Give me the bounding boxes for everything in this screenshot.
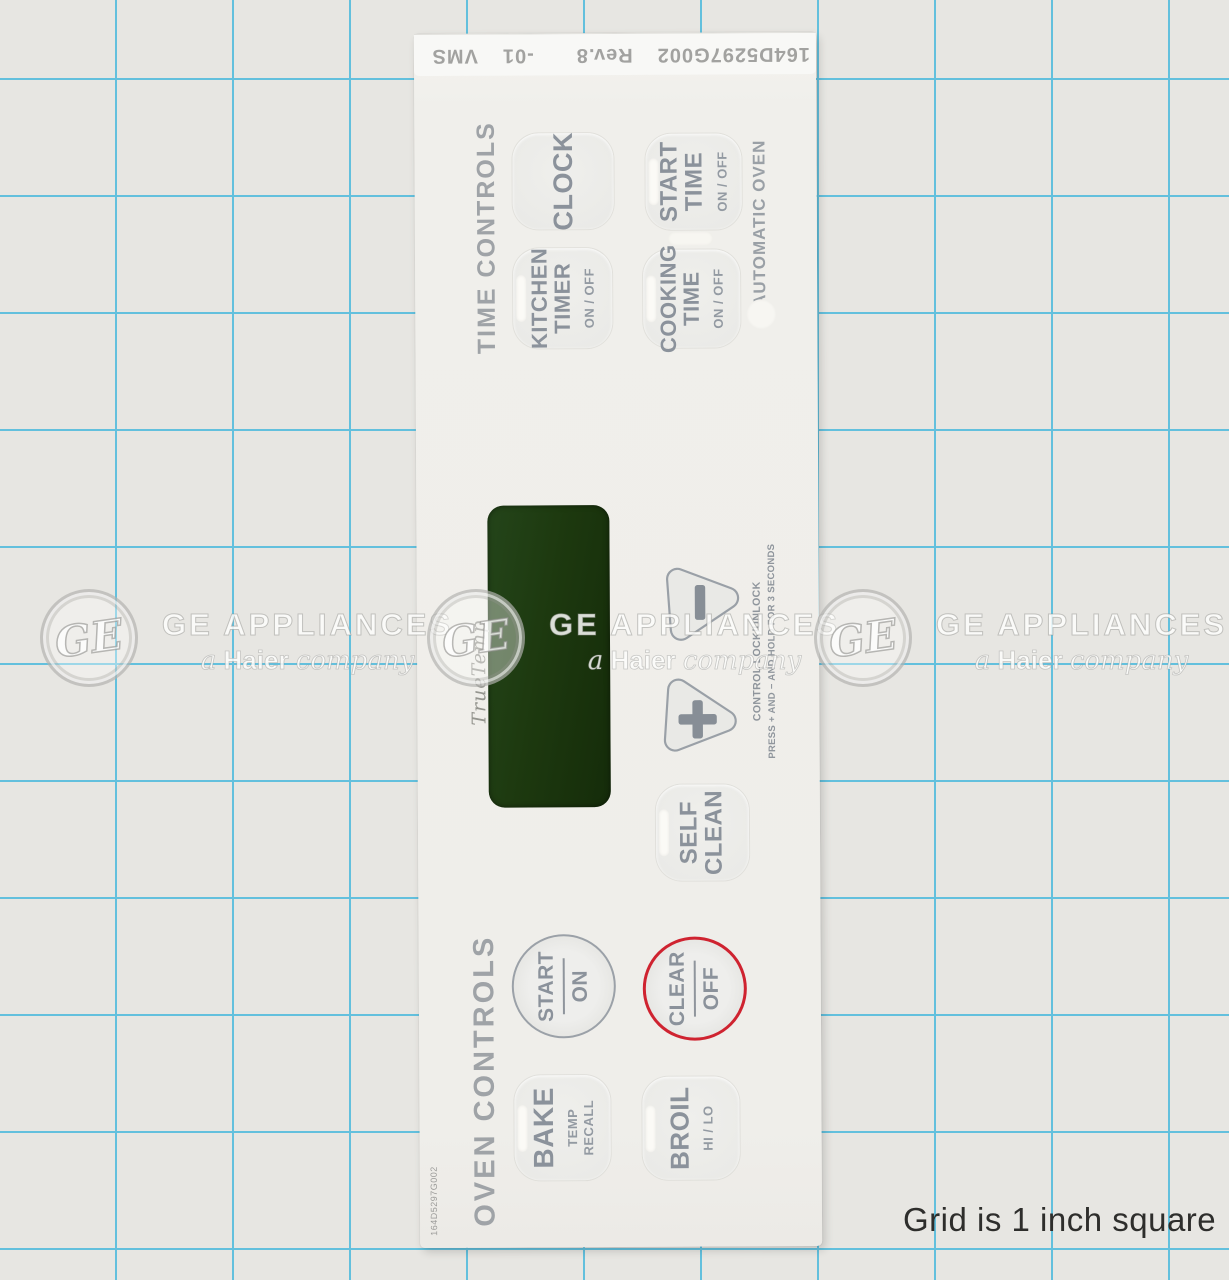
kitchen-timer-button[interactable]: KITCHEN TIMER ON / OFF bbox=[513, 248, 613, 349]
clock-label: CLOCK bbox=[549, 132, 578, 231]
watermark-brand: GE APPLIANCES bbox=[549, 607, 840, 643]
automatic-oven-label: AUTOMATIC OVEN bbox=[749, 140, 770, 307]
ge-watermark: GE GE APPLIANCES a Haier company bbox=[814, 589, 1227, 687]
watermark-tagline: a Haier company bbox=[975, 645, 1188, 676]
watermark-brand: GE APPLIANCES bbox=[936, 607, 1227, 643]
ge-monogram-icon: GE bbox=[814, 589, 912, 687]
part-vms: VMS bbox=[432, 44, 478, 67]
start-on-button[interactable]: START ON bbox=[512, 934, 617, 1039]
part-dash: -01 bbox=[502, 43, 534, 66]
side-part-number: 164D5297G002 bbox=[429, 1166, 439, 1236]
divider-line bbox=[562, 958, 565, 1014]
grid-caption: Grid is 1 inch square bbox=[903, 1201, 1216, 1239]
ge-monogram-icon: GE bbox=[40, 589, 138, 687]
part-number: 164D5297G002 bbox=[657, 42, 810, 66]
photo-stage: 164D5297G002 Rev.8 -01 VMS TIME CONTROLS… bbox=[0, 0, 1229, 1280]
part-number-strip: 164D5297G002 Rev.8 -01 VMS bbox=[414, 32, 816, 76]
part-rev: Rev.8 bbox=[576, 43, 633, 66]
watermark-tagline: a Haier company bbox=[588, 645, 801, 676]
bake-button[interactable]: BAKE TEMP RECALL bbox=[514, 1075, 611, 1181]
ge-monogram-icon: GE bbox=[427, 589, 525, 687]
start-time-button[interactable]: START TIME ON / OFF bbox=[645, 133, 742, 230]
ge-watermark: GE GE APPLIANCES a Haier company bbox=[40, 589, 453, 687]
clock-button[interactable]: CLOCK bbox=[512, 133, 614, 230]
oven-controls-label: OVEN CONTROLS bbox=[468, 935, 503, 1227]
time-controls-label: TIME CONTROLS bbox=[472, 121, 502, 354]
self-clean-button[interactable]: SELF CLEAN bbox=[656, 784, 750, 880]
automatic-oven-indicator bbox=[746, 299, 776, 329]
watermark-tagline: a Haier company bbox=[201, 645, 414, 676]
watermark-brand: GE APPLIANCES bbox=[162, 607, 453, 643]
ge-watermark: GE GE APPLIANCES a Haier company bbox=[427, 589, 840, 687]
broil-button[interactable]: BROIL HI / LO bbox=[642, 1076, 740, 1180]
divider-line bbox=[693, 961, 696, 1017]
clear-off-button[interactable]: CLEAR OFF bbox=[643, 936, 748, 1041]
cooking-time-button[interactable]: COOKING TIME ON / OFF bbox=[643, 249, 741, 348]
